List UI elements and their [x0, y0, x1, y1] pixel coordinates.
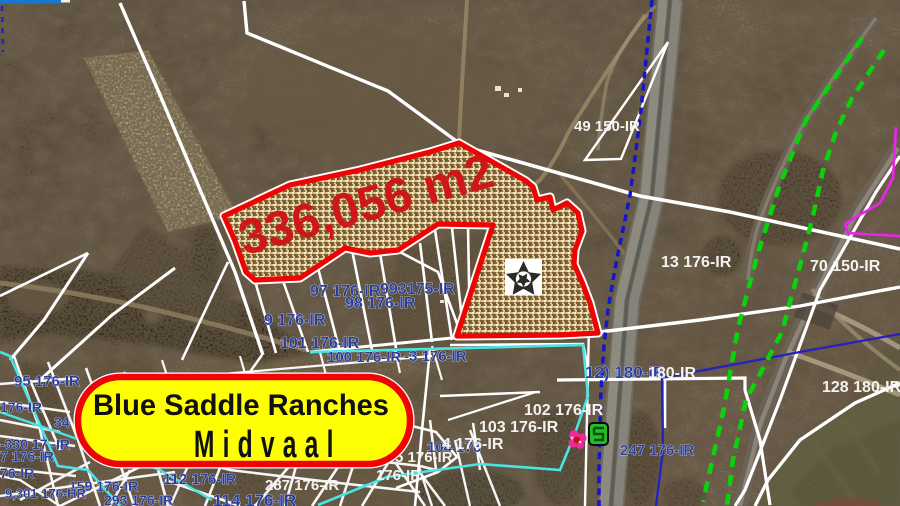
svg-text:70 150-IR: 70 150-IR: [810, 258, 881, 275]
svg-text:100 176-IR: 100 176-IR: [327, 349, 401, 366]
svg-text:98 176-IR: 98 176-IR: [345, 295, 416, 312]
svg-text:176-IR: 176-IR: [376, 467, 421, 484]
svg-text:M i d v a a l: M i d v a a l: [194, 423, 334, 466]
svg-text:7 176-IR: 7 176-IR: [0, 448, 54, 464]
svg-text:95 176-IR: 95 176-IR: [14, 373, 80, 390]
svg-text:103 176-IR: 103 176-IR: [479, 419, 559, 436]
svg-text:49 150-IR: 49 150-IR: [574, 118, 640, 135]
svg-text:112 176-IR: 112 176-IR: [163, 471, 237, 488]
svg-text:5 176-IR: 5 176-IR: [395, 449, 453, 466]
svg-text:9,301 176-HR: 9,301 176-HR: [5, 486, 87, 501]
svg-text:102 176-IR: 102 176-IR: [524, 402, 604, 419]
svg-text:9 176-IR: 9 176-IR: [264, 312, 326, 329]
svg-text:Blue Saddle Ranches: Blue Saddle Ranches: [93, 389, 389, 422]
svg-text:13 176-IR: 13 176-IR: [661, 254, 732, 271]
svg-text:176-IR: 176-IR: [0, 399, 42, 415]
svg-text:287 176-IR: 287 176-IR: [265, 477, 339, 494]
svg-text:128 180-IR: 128 180-IR: [822, 379, 900, 396]
svg-text:293 176-IR: 293 176-IR: [104, 492, 173, 506]
svg-text:76-IR: 76-IR: [0, 465, 34, 481]
svg-text:247 176-IR: 247 176-IR: [620, 442, 694, 459]
svg-text:180-IR: 180-IR: [648, 365, 696, 382]
svg-text:-3 176-IR: -3 176-IR: [404, 348, 467, 365]
